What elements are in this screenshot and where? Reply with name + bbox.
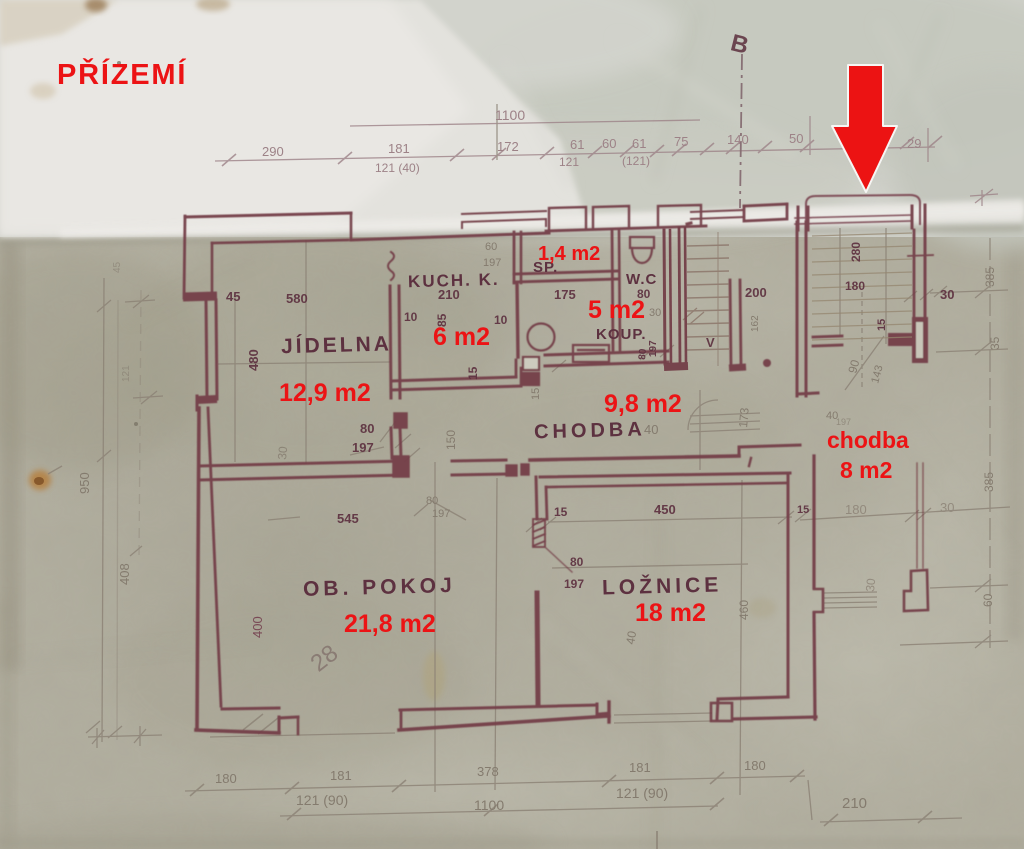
svg-text:61: 61 xyxy=(632,136,646,151)
svg-text:15: 15 xyxy=(466,366,480,380)
svg-text:29: 29 xyxy=(907,136,921,151)
svg-text:385: 385 xyxy=(983,267,997,287)
svg-text:LOŽNICE: LOŽNICE xyxy=(602,572,723,599)
svg-text:181: 181 xyxy=(330,768,352,783)
svg-text:200: 200 xyxy=(745,285,767,300)
svg-text:(121): (121) xyxy=(622,154,650,168)
svg-text:80: 80 xyxy=(360,421,374,436)
svg-text:450: 450 xyxy=(654,502,676,517)
svg-text:180: 180 xyxy=(744,758,766,773)
svg-text:60: 60 xyxy=(981,593,995,607)
svg-text:30: 30 xyxy=(275,445,290,460)
svg-text:162: 162 xyxy=(750,315,761,332)
svg-text:40: 40 xyxy=(623,630,639,646)
svg-text:chodba: chodba xyxy=(827,427,909,453)
svg-text:6 m2: 6 m2 xyxy=(433,323,490,351)
svg-text:408: 408 xyxy=(117,563,132,585)
svg-text:175: 175 xyxy=(554,287,576,302)
svg-text:180: 180 xyxy=(845,502,867,517)
svg-text:400: 400 xyxy=(250,616,265,638)
svg-text:197: 197 xyxy=(483,257,501,269)
svg-text:197: 197 xyxy=(648,340,659,357)
svg-text:8 m2: 8 m2 xyxy=(840,457,892,483)
svg-text:121 (90): 121 (90) xyxy=(296,792,348,808)
svg-text:30: 30 xyxy=(863,577,878,592)
svg-text:61: 61 xyxy=(570,137,584,152)
svg-text:V: V xyxy=(706,335,715,350)
svg-text:197: 197 xyxy=(432,508,450,520)
svg-text:210: 210 xyxy=(438,287,460,302)
svg-text:9,8 m2: 9,8 m2 xyxy=(604,390,682,418)
svg-text:172: 172 xyxy=(497,139,519,154)
svg-text:40: 40 xyxy=(644,422,658,437)
svg-text:60: 60 xyxy=(485,241,497,253)
svg-text:15: 15 xyxy=(530,388,542,400)
svg-text:580: 580 xyxy=(286,291,308,306)
svg-text:378: 378 xyxy=(477,764,499,779)
svg-text:60: 60 xyxy=(602,136,616,151)
svg-text:OB. POKOJ: OB. POKOJ xyxy=(303,574,456,601)
svg-text:181: 181 xyxy=(388,141,410,156)
svg-text:75: 75 xyxy=(674,134,688,149)
svg-text:30: 30 xyxy=(649,307,661,319)
svg-text:PŘÍZEMÍ: PŘÍZEMÍ xyxy=(57,57,187,91)
svg-text:210: 210 xyxy=(842,795,867,812)
svg-text:950: 950 xyxy=(77,472,92,494)
svg-text:CHODBA: CHODBA xyxy=(534,418,646,443)
svg-text:80: 80 xyxy=(570,555,584,569)
svg-text:180: 180 xyxy=(215,771,237,786)
svg-text:W.C: W.C xyxy=(626,271,657,288)
svg-text:45: 45 xyxy=(112,261,123,273)
svg-text:80: 80 xyxy=(426,495,438,507)
svg-text:15: 15 xyxy=(554,505,568,519)
svg-text:121 (40): 121 (40) xyxy=(375,161,420,175)
svg-text:1100: 1100 xyxy=(474,797,504,813)
svg-text:45: 45 xyxy=(226,289,240,304)
svg-text:140: 140 xyxy=(727,132,749,147)
svg-text:JÍDELNA: JÍDELNA xyxy=(281,332,392,358)
svg-text:15: 15 xyxy=(876,319,888,331)
svg-text:15: 15 xyxy=(797,504,809,516)
svg-text:181: 181 xyxy=(629,760,651,775)
svg-text:10: 10 xyxy=(404,310,418,324)
svg-text:10: 10 xyxy=(494,313,508,327)
svg-text:290: 290 xyxy=(262,144,284,159)
svg-text:385: 385 xyxy=(982,472,996,492)
svg-text:35: 35 xyxy=(988,336,1002,350)
svg-text:197: 197 xyxy=(836,417,851,427)
svg-text:12,9 m2: 12,9 m2 xyxy=(279,379,371,407)
svg-text:460: 460 xyxy=(737,600,751,620)
svg-text:180: 180 xyxy=(845,279,865,293)
svg-text:1100: 1100 xyxy=(495,107,525,123)
svg-text:21,8 m2: 21,8 m2 xyxy=(344,610,436,638)
svg-text:5 m2: 5 m2 xyxy=(588,296,645,324)
svg-text:150: 150 xyxy=(444,430,458,450)
svg-text:480: 480 xyxy=(246,349,261,371)
svg-text:KOUP.: KOUP. xyxy=(596,326,647,343)
svg-text:18 m2: 18 m2 xyxy=(635,599,706,627)
svg-text:121: 121 xyxy=(559,155,579,169)
svg-text:30: 30 xyxy=(940,287,954,302)
svg-text:121: 121 xyxy=(121,365,132,382)
svg-text:30: 30 xyxy=(940,500,954,515)
svg-text:280: 280 xyxy=(849,242,863,262)
svg-text:545: 545 xyxy=(337,511,359,526)
svg-text:121 (90): 121 (90) xyxy=(616,785,668,801)
svg-text:173: 173 xyxy=(736,407,752,428)
svg-text:197: 197 xyxy=(564,577,584,591)
svg-text:1,4 m2: 1,4 m2 xyxy=(538,243,600,265)
svg-text:50: 50 xyxy=(789,131,803,146)
svg-text:197: 197 xyxy=(352,440,374,455)
